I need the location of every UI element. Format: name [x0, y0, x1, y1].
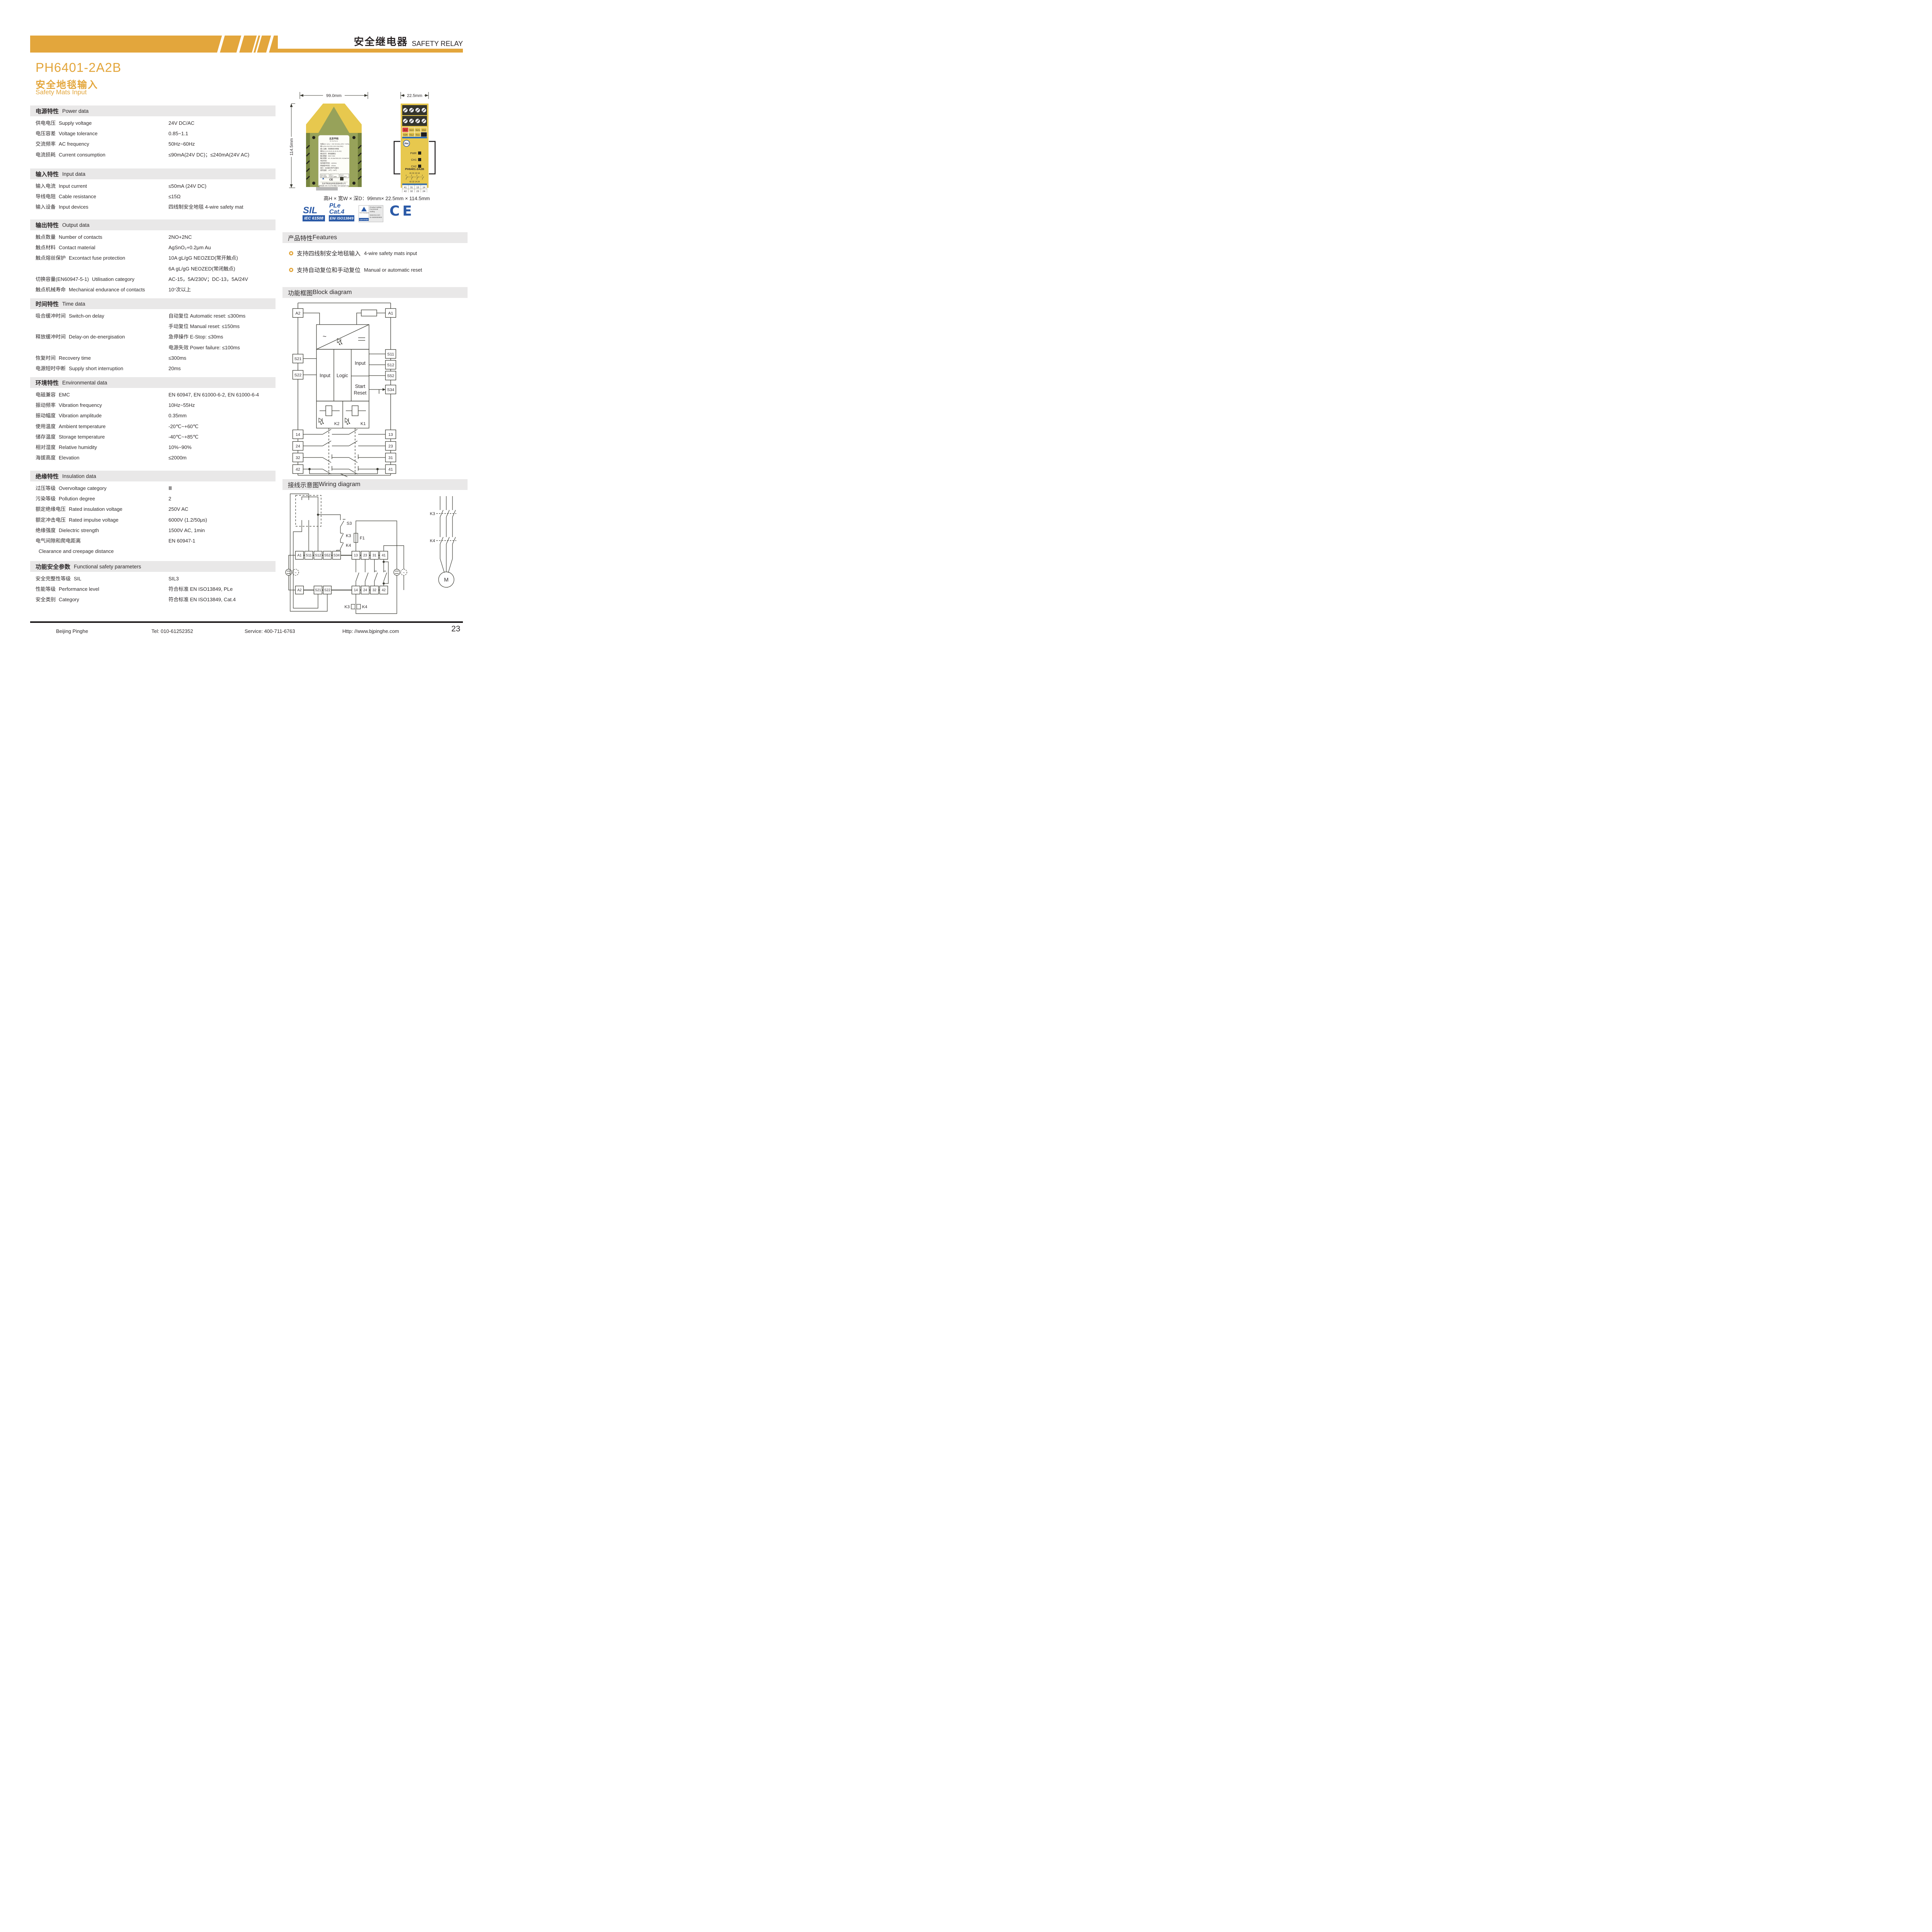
spec-value: ≤300ms	[168, 353, 277, 363]
section-header-power: 电源特性Power data	[30, 105, 276, 116]
spec-values: 四线制安全地毯 4-wire safety mat	[168, 202, 277, 212]
spec-label-zh: 电气间隙和爬电距离	[36, 536, 168, 546]
front-out-label: 31	[410, 186, 413, 189]
terminal-label: 14	[296, 432, 300, 437]
bd-block-logic: Logic	[337, 373, 348, 378]
side-label-cert-line: ISO 13849	[331, 176, 337, 178]
spec-label-zh: 电源短时中断	[36, 366, 66, 371]
section-rows-input: 输入电流Input current≤50mA (24V DC)导线电阻Cable…	[36, 181, 277, 213]
spec-label: 触点材料Contact material	[36, 242, 168, 253]
terminal-label: S22	[324, 588, 330, 592]
spec-values: 急停操作 E-Stop: ≤30ms电源失效 Power failure: ≤1…	[168, 332, 277, 352]
section-rows-time: 吸合缓冲时间Switch-on delay自动复位 Automatic rese…	[36, 311, 277, 374]
spec-value: 10%~90%	[168, 442, 277, 452]
spec-values: -20℃~+60℃	[168, 421, 277, 432]
spec-value: 2NO+2NC	[168, 232, 277, 242]
terminal-label: S11	[387, 352, 394, 357]
spec-label-en: Contact material	[59, 245, 95, 250]
spec-label-zh: 振动频率	[36, 402, 56, 408]
product-model: PH6401-2A2B	[36, 60, 121, 75]
spec-row: 使用温度Ambient temperature-20℃~+60℃	[36, 421, 277, 432]
spec-label-zh: 绝缘强度	[36, 527, 56, 533]
side-label-line: 吸合缓冲时间：≤300ms	[320, 162, 337, 164]
wd-phase-k4-label: K4	[430, 539, 435, 543]
footer-url: Http: //www.bjpinghe.com	[342, 628, 399, 634]
sil-badge-standard: IEC 61508	[303, 215, 325, 221]
side-label-line: 电源(A1+,A2-)：24V DC/AC(-15%~+10%)	[320, 143, 349, 145]
spec-row: 释放缓冲时间Delay-on de-energisation急停操作 E-Sto…	[36, 332, 277, 352]
spec-label: 振动频率Vibration frequency	[36, 400, 168, 410]
front-cell-label: A1	[404, 129, 407, 132]
terminal-label: S34	[387, 388, 395, 392]
terminal-label: 41	[382, 553, 386, 557]
spec-label-en: Storage temperature	[59, 434, 105, 440]
header-bar-slash	[265, 33, 274, 56]
spec-value: 符合标准 EN ISO13849, PLe	[168, 584, 277, 594]
section-header-insulation: 绝缘特性Insulation data	[30, 471, 276, 481]
ac-source-symbol: ~	[294, 571, 296, 575]
spec-values: EN 60947, EN 61000-6-2, EN 61000-6-4	[168, 389, 277, 400]
spec-values: 24V DC/AC	[168, 118, 277, 128]
wd-phase-k3-label: K3	[430, 512, 435, 516]
section-header-block-diagram: 功能框图 Block diagram	[282, 287, 468, 298]
spec-label: 供电电压Supply voltage	[36, 118, 168, 128]
spec-label-zh: 电流损耗	[36, 152, 56, 158]
spec-row: 安全类别Category符合标准 EN ISO13849, Cat.4	[36, 594, 277, 605]
spec-label-zh: 电压容差	[36, 131, 56, 136]
block-diagram: ~ Input Logic Input Start Reset K2 K1 A2…	[282, 301, 468, 478]
terminal-label: S52	[387, 374, 395, 378]
spec-label-en: Utilisation category	[92, 276, 134, 282]
wd-f1-label: F1	[360, 536, 365, 541]
dimension-summary: 高H × 宽W × 深D：99mm× 22.5mm × 114.5mm	[286, 194, 468, 202]
spec-row: 污染等级Pollution degree2	[36, 493, 277, 504]
features-header-zh: 产品特性	[288, 233, 313, 242]
spec-row: 供电电压Supply voltage24V DC/AC	[36, 118, 277, 128]
terminal-label: S22	[294, 373, 302, 378]
wiring-header-en: Wiring diagram	[319, 481, 361, 488]
spec-row: 切换容量(EN60947-5-1)Utilisation categoryAC-…	[36, 274, 277, 284]
spec-label-en: SIL	[74, 576, 82, 582]
ac-symbol: ~	[323, 333, 327, 340]
spec-label-en: Voltage tolerance	[59, 131, 97, 136]
terminal-label: S11	[306, 553, 311, 557]
ple-badge-standard: EN/ ISO13849	[329, 215, 354, 221]
spec-label: 切换容量(EN60947-5-1)Utilisation category	[36, 274, 168, 284]
spec-value: 6000V (1.2/50μs)	[168, 515, 277, 525]
spec-label-en: Overvoltage category	[59, 485, 107, 491]
device-side-view: 北京平和Bei Jing Ping He电源(A1+,A2-)：24V DC/A…	[306, 104, 362, 190]
spec-value: 急停操作 E-Stop: ≤30ms	[168, 332, 277, 342]
spec-values: 符合标准 EN ISO13849, Cat.4	[168, 594, 277, 605]
wiring-header-zh: 接线示意图	[288, 480, 319, 489]
terminal-label: A1	[297, 553, 301, 557]
spec-label-zh: 过压等级	[36, 485, 56, 491]
spec-label-zh: 额定绝缘电压	[36, 506, 66, 512]
spec-value: ≤50mA (24V DC)	[168, 181, 277, 191]
spec-label-en: Number of contacts	[59, 234, 102, 240]
dim-width-label: 99.0mm	[326, 94, 342, 98]
side-label-line: 复位：自动复位和手动复位	[320, 167, 339, 169]
front-cell-label: A2	[422, 134, 425, 136]
spec-label-zh: 触点数量	[36, 234, 56, 240]
spec-values: SIL3	[168, 573, 277, 584]
section-title-zh: 电源特性	[36, 107, 59, 115]
section-title-zh: 功能安全参数	[36, 563, 70, 571]
tuv-brand: TÜV Rheinland	[359, 212, 369, 214]
spec-label-en: Switch-on delay	[69, 313, 104, 319]
spec-label-zh: 相对湿度	[36, 444, 56, 450]
spec-label-en: Mechanical endurance of contacts	[69, 287, 145, 293]
spec-values: ≤50mA (24V DC)	[168, 181, 277, 191]
feature-item: 支持自动复位和手动复位Manual or automatic reset	[289, 266, 422, 274]
spec-label-en: Supply voltage	[59, 120, 92, 126]
side-label-line: 使用温度：-20℃~+60℃	[320, 169, 337, 171]
section-title-en: Input data	[62, 171, 85, 177]
spec-label-en: Current consumption	[59, 152, 105, 158]
spec-label: 吸合缓冲时间Switch-on delay	[36, 311, 168, 321]
terminal-label: S34	[333, 553, 340, 557]
spec-label: 电磁兼容EMC	[36, 389, 168, 400]
spec-row: 额定冲击电压Rated impulse voltage6000V (1.2/50…	[36, 515, 277, 525]
section-title-zh: 输出特性	[36, 221, 59, 229]
section-rows-power: 供电电压Supply voltage24V DC/AC电压容差Voltage t…	[36, 118, 277, 160]
spec-row: 导线电阻Cable resistance≤15Ω	[36, 191, 277, 202]
spec-values: 6000V (1.2/50μs)	[168, 515, 277, 525]
spec-label-zh: 使用温度	[36, 423, 56, 429]
section-title-en: Time data	[62, 301, 85, 307]
terminal-label: A2	[296, 311, 301, 316]
feature-en: 4-wire safety mats input	[364, 250, 417, 256]
spec-label-zh: 导线电阻	[36, 194, 56, 199]
feature-zh: 支持四线制安全地毯输入	[297, 249, 361, 257]
terminal-label: S52	[324, 553, 330, 557]
tuv-triangle-icon	[361, 207, 367, 211]
spec-label: 相对湿度Relative humidity	[36, 442, 168, 452]
spec-row: 振动幅度Vibration amplitude0.35mm	[36, 410, 277, 421]
spec-value: Ⅲ	[168, 483, 277, 493]
front-cell-label: S12	[409, 134, 414, 136]
header-bar-slash	[216, 33, 225, 56]
spec-label-zh: 电磁兼容	[36, 392, 56, 398]
front-out-label: 13	[416, 186, 419, 189]
spec-row: 性能等级Performance level符合标准 EN ISO13849, P…	[36, 584, 277, 594]
spec-row: 电磁兼容EMCEN 60947, EN 61000-6-2, EN 61000-…	[36, 389, 277, 400]
footer-rule	[30, 621, 463, 623]
spec-value: AgSnO₂+0.2μm Au	[168, 242, 277, 253]
spec-label-en: AC frequency	[59, 141, 89, 147]
header-title-zh: 安全继电器	[354, 34, 408, 48]
feature-en: Manual or automatic reset	[364, 267, 422, 273]
spec-values: ≤90mA(24V DC)；≤240mA(24V AC)	[168, 150, 277, 160]
spec-values: 2	[168, 493, 277, 504]
wd-k4-label: K4	[346, 543, 351, 548]
spec-label: 输入设备Input devices	[36, 202, 168, 212]
side-label-line: 输入(S11,S12,S21,S22,S34,S52)：	[320, 145, 345, 147]
spec-label-zh: 触点材料	[36, 245, 56, 250]
spec-label: 触点数量Number of contacts	[36, 232, 168, 242]
section-rows-safety: 安全完整性等级SILSIL3性能等级Performance level符合标准 …	[36, 573, 277, 605]
wd-k3-label: K3	[346, 534, 351, 538]
spec-row: 安全完整性等级SILSIL3	[36, 573, 277, 584]
spec-values: ≤15Ω	[168, 191, 277, 202]
spec-values: 10%~90%	[168, 442, 277, 452]
terminal-label: 23	[388, 444, 393, 449]
ce-mark: CE	[389, 203, 415, 219]
product-dimension-drawing: 99.0mm 22.5mm 114.5mm 北京平和Bei Jing Ping …	[286, 90, 468, 192]
side-label-qr-code	[340, 177, 344, 180]
spec-label-en: Ambient temperature	[59, 423, 105, 429]
ple-line2: Cat.4	[329, 209, 344, 215]
led-indicator	[418, 151, 421, 155]
wd-s3-label: S3	[347, 521, 352, 526]
terminal-label: 31	[388, 456, 393, 460]
spec-label-zh: 额定冲击电压	[36, 517, 66, 523]
spec-label-zh: 安全完整性等级	[36, 576, 71, 582]
feature-item: 支持四线制安全地毯输入4-wire safety mats input	[289, 249, 417, 257]
spec-values: 1500V AC, 1min	[168, 525, 277, 536]
terminal-label: 13	[354, 553, 358, 557]
spec-label: 额定绝缘电压Rated insulation voltage	[36, 504, 168, 514]
feature-zh: 支持自动复位和手动复位	[297, 266, 361, 274]
terminal-label: A2	[297, 588, 301, 592]
spec-values: 50Hz~60Hz	[168, 139, 277, 149]
ple-line1: PLe	[329, 202, 340, 209]
spec-values: AgSnO₂+0.2μm Au	[168, 242, 277, 253]
spec-value: 手动复位 Manual reset: ≤150ms	[168, 321, 277, 332]
spec-label: 使用温度Ambient temperature	[36, 421, 168, 432]
spec-label-en: Input devices	[59, 204, 88, 210]
spec-label-en: Vibration amplitude	[59, 413, 102, 418]
spec-label: 输入电流Input current	[36, 181, 168, 191]
bullet-icon	[289, 268, 293, 272]
spec-value: 6A gL/gG NEOZED(常闭触点)	[168, 264, 277, 274]
spec-label-en: Rated impulse voltage	[69, 517, 119, 523]
spec-label: 性能等级Performance level	[36, 584, 168, 594]
spec-row: 储存温度Storage temperature-40℃~+85℃	[36, 432, 277, 442]
spec-label: 释放缓冲时间Delay-on de-energisation	[36, 332, 168, 342]
spec-label-en: Pollution degree	[59, 496, 95, 502]
section-header-safety: 功能安全参数Functional safety parameters	[30, 561, 276, 572]
bd-block-start: Start	[355, 384, 366, 389]
header-accent-bar	[30, 36, 278, 53]
spec-label: 电源短时中断Supply short interruption	[36, 363, 168, 374]
spec-value: ≤2000m	[168, 452, 277, 463]
section-title-en: Insulation data	[62, 473, 96, 479]
front-cell-label: S21	[415, 129, 420, 132]
spec-values: 20ms	[168, 363, 277, 374]
spec-value: SIL3	[168, 573, 277, 584]
dim-height-label: 114.5mm	[289, 138, 294, 155]
terminal-label: S12	[387, 363, 395, 367]
spec-values: 10⁷次以上	[168, 284, 277, 295]
section-header-time: 时间特性Time data	[30, 298, 276, 309]
side-label-line: 释放缓冲时间：≤30ms	[320, 164, 336, 167]
spec-values: Ⅲ	[168, 483, 277, 493]
section-rows-insulation: 过压等级Overvoltage categoryⅢ污染等级Pollution d…	[36, 483, 277, 556]
section-title-zh: 时间特性	[36, 300, 59, 308]
front-out-label: 23	[416, 190, 419, 192]
device-front-view: A1S22S21S52S34S12S11A2 PH PWRCH1CH2 PH64…	[394, 104, 435, 192]
spec-value: 10Hz~55Hz	[168, 400, 277, 410]
spec-row: 吸合缓冲时间Switch-on delay自动复位 Automatic rese…	[36, 311, 277, 332]
front-model-label: PH6401-2A2B	[405, 167, 424, 171]
terminal-label: 13	[388, 432, 393, 437]
spec-values: AC-15，5A/230V；DC-13，5A/24V	[168, 274, 277, 284]
side-label-line: 输入设备：四线制安全地毯	[320, 147, 339, 150]
tuv-certified-label: CERTIFIED	[359, 218, 369, 221]
spec-value: ≤15Ω	[168, 191, 277, 202]
header-title-en: SAFETY RELAY	[412, 40, 463, 48]
spec-label: 交流频率AC frequency	[36, 139, 168, 149]
spec-label-en: EMC	[59, 392, 70, 398]
spec-label-en: Supply short interruption	[69, 366, 123, 371]
section-header-wiring-diagram: 接线示意图 Wiring diagram	[282, 479, 468, 490]
spec-label-zh: 释放缓冲时间	[36, 334, 66, 340]
section-header-features: 产品特性 Features	[282, 232, 468, 243]
spec-values: 10Hz~55Hz	[168, 400, 277, 410]
led-indicator	[418, 158, 421, 161]
spec-label-en: Rated insulation voltage	[69, 506, 122, 512]
spec-label-zh: 触点机械寿命	[36, 287, 66, 293]
tuv-line3: Safety	[370, 211, 383, 213]
spec-value: 自动复位 Automatic reset: ≤300ms	[168, 311, 277, 321]
wiring-diagram: ~ ~ S3 K3 K4 F1 K3 K4 K3 K4 M A1S11S12S5…	[282, 493, 468, 618]
spec-label: 电流损耗Current consumption	[36, 150, 168, 160]
spec-label-zh: 供电电压	[36, 120, 56, 126]
spec-row: 触点机械寿命Mechanical endurance of contacts10…	[36, 284, 277, 295]
terminal-label: 14	[354, 588, 358, 592]
features-header-en: Features	[313, 234, 337, 241]
spec-values: 2NO+2NC	[168, 232, 277, 242]
spec-label-zh: 安全类别	[36, 597, 56, 602]
spec-label-zh: 输入电流	[36, 183, 56, 189]
side-label-line: 触点数量：2NO+2NC	[320, 155, 335, 157]
spec-value: 符合标准 EN ISO13849, Cat.4	[168, 594, 277, 605]
section-header-input: 输入特性Input data	[30, 168, 276, 179]
spec-label: 安全完整性等级SIL	[36, 573, 168, 584]
spec-label-zh: 性能等级	[36, 586, 56, 592]
spec-value: 2	[168, 493, 277, 504]
section-rows-output: 触点数量Number of contacts2NO+2NC触点材料Contact…	[36, 232, 277, 295]
spec-row: 相对湿度Relative humidity10%~90%	[36, 442, 277, 452]
spec-value: 24V DC/AC	[168, 118, 277, 128]
spec-value: AC-15，5A/230V；DC-13，5A/24V	[168, 274, 277, 284]
led-label: CH1	[411, 159, 417, 162]
spec-values: EN 60947-1	[168, 536, 277, 546]
spec-label-en: Recovery time	[59, 355, 91, 361]
spec-row: 触点数量Number of contacts2NO+2NC	[36, 232, 277, 242]
front-mini-bottom: 42 32 14 24	[410, 181, 420, 183]
spec-label-en: Excontact fuse protection	[69, 255, 125, 261]
spec-label-zh: 污染等级	[36, 496, 56, 502]
wd-motor-label: M	[444, 577, 449, 583]
footer-company: Beijing Pinghe	[56, 628, 88, 634]
spec-values: 0.85~1.1	[168, 128, 277, 139]
spec-label: 储存温度Storage temperature	[36, 432, 168, 442]
spec-values: -40℃~+85℃	[168, 432, 277, 442]
front-out-label: 41	[404, 186, 407, 189]
terminal-label: 32	[296, 456, 300, 460]
spec-row: 输入电流Input current≤50mA (24V DC)	[36, 181, 277, 191]
spec-label-en: Clearance and creepage distance	[39, 546, 168, 556]
header-bar-slash	[236, 33, 245, 56]
spec-values: 自动复位 Automatic reset: ≤300ms手动复位 Manual …	[168, 311, 277, 332]
front-out-label: 42	[404, 190, 407, 192]
spec-values: ≤300ms	[168, 353, 277, 363]
spec-value: 20ms	[168, 363, 277, 374]
spec-row: 电源短时中断Supply short interruption20ms	[36, 363, 277, 374]
side-label-line: 响应时间：	[320, 159, 328, 162]
spec-label-en: Relative humidity	[59, 444, 97, 450]
spec-label: 电压容差Voltage tolerance	[36, 128, 168, 139]
spec-row: 海拔高度Elevation≤2000m	[36, 452, 277, 463]
terminal-label: 42	[382, 588, 386, 592]
spec-label: 导线电阻Cable resistance	[36, 191, 168, 202]
bd-block-input-left: Input	[320, 373, 330, 378]
product-subtitle-en: Safety Mats Input	[36, 88, 87, 96]
side-label-ce-mark: CE	[329, 179, 333, 181]
spec-row: 电压容差Voltage tolerance0.85~1.1	[36, 128, 277, 139]
spec-label-en: Category	[59, 597, 79, 602]
spec-value: EN 60947, EN 61000-6-2, EN 61000-6-4	[168, 389, 277, 400]
bullet-icon	[289, 251, 293, 255]
spec-value: 10A gL/gG NEOZED(常开触点)	[168, 253, 277, 263]
ac-source-symbol: ~	[403, 571, 405, 575]
terminal-label: 24	[363, 588, 367, 592]
terminal-label: 32	[372, 588, 376, 592]
section-title-en: Power data	[62, 108, 88, 114]
terminal-label: 23	[363, 553, 367, 557]
front-cell-label: S22	[409, 129, 414, 132]
spec-label-zh: 恢复时间	[36, 355, 56, 361]
side-label-company: 北京平和创业科技发展有限公司	[322, 182, 345, 185]
section-title-en: Functional safety parameters	[74, 564, 141, 570]
spec-value: -40℃~+85℃	[168, 432, 277, 442]
spec-label-en: Input current	[59, 183, 87, 189]
terminal-label: 42	[296, 467, 300, 472]
section-header-output: 输出特性Output data	[30, 219, 276, 230]
spec-value: 四线制安全地毯 4-wire safety mat	[168, 202, 277, 212]
spec-label: 额定冲击电压Rated impulse voltage	[36, 515, 168, 525]
spec-label: 安全类别Category	[36, 594, 168, 605]
spec-value: -20℃~+60℃	[168, 421, 277, 432]
spec-row: 电流损耗Current consumption≤90mA(24V DC)；≤24…	[36, 150, 277, 160]
spec-label: 振动幅度Vibration amplitude	[36, 410, 168, 421]
side-label-logo-zh: 北京平和	[329, 137, 338, 140]
terminal-label: 24	[296, 444, 300, 449]
front-out-label: 32	[410, 190, 413, 192]
spec-value: EN 60947-1	[168, 536, 277, 546]
header-accent-strip	[277, 49, 463, 53]
spec-values: 0.35mm	[168, 410, 277, 421]
spec-label: 电气间隙和爬电距离Clearance and creepage distance	[36, 536, 168, 556]
spec-label-en: Elevation	[59, 455, 79, 461]
section-title-en: Output data	[62, 222, 90, 228]
terminal-label: S21	[294, 357, 302, 361]
wd-coil-k4-label: K4	[362, 605, 367, 609]
spec-row: 触点材料Contact materialAgSnO₂+0.2μm Au	[36, 242, 277, 253]
spec-label-zh: 海拔高度	[36, 455, 56, 461]
front-out-label: 14	[422, 186, 425, 189]
block-diagram-header-zh: 功能框图	[288, 288, 313, 297]
brand-logo: PH	[405, 142, 408, 145]
bd-block-reset: Reset	[354, 390, 367, 396]
ple-badge-title: PLeCat.4	[329, 203, 344, 215]
spec-value: 50Hz~60Hz	[168, 139, 277, 149]
side-label-cert-line: IEC 61508	[321, 176, 327, 178]
wd-coil-k3-label: K3	[345, 605, 350, 609]
